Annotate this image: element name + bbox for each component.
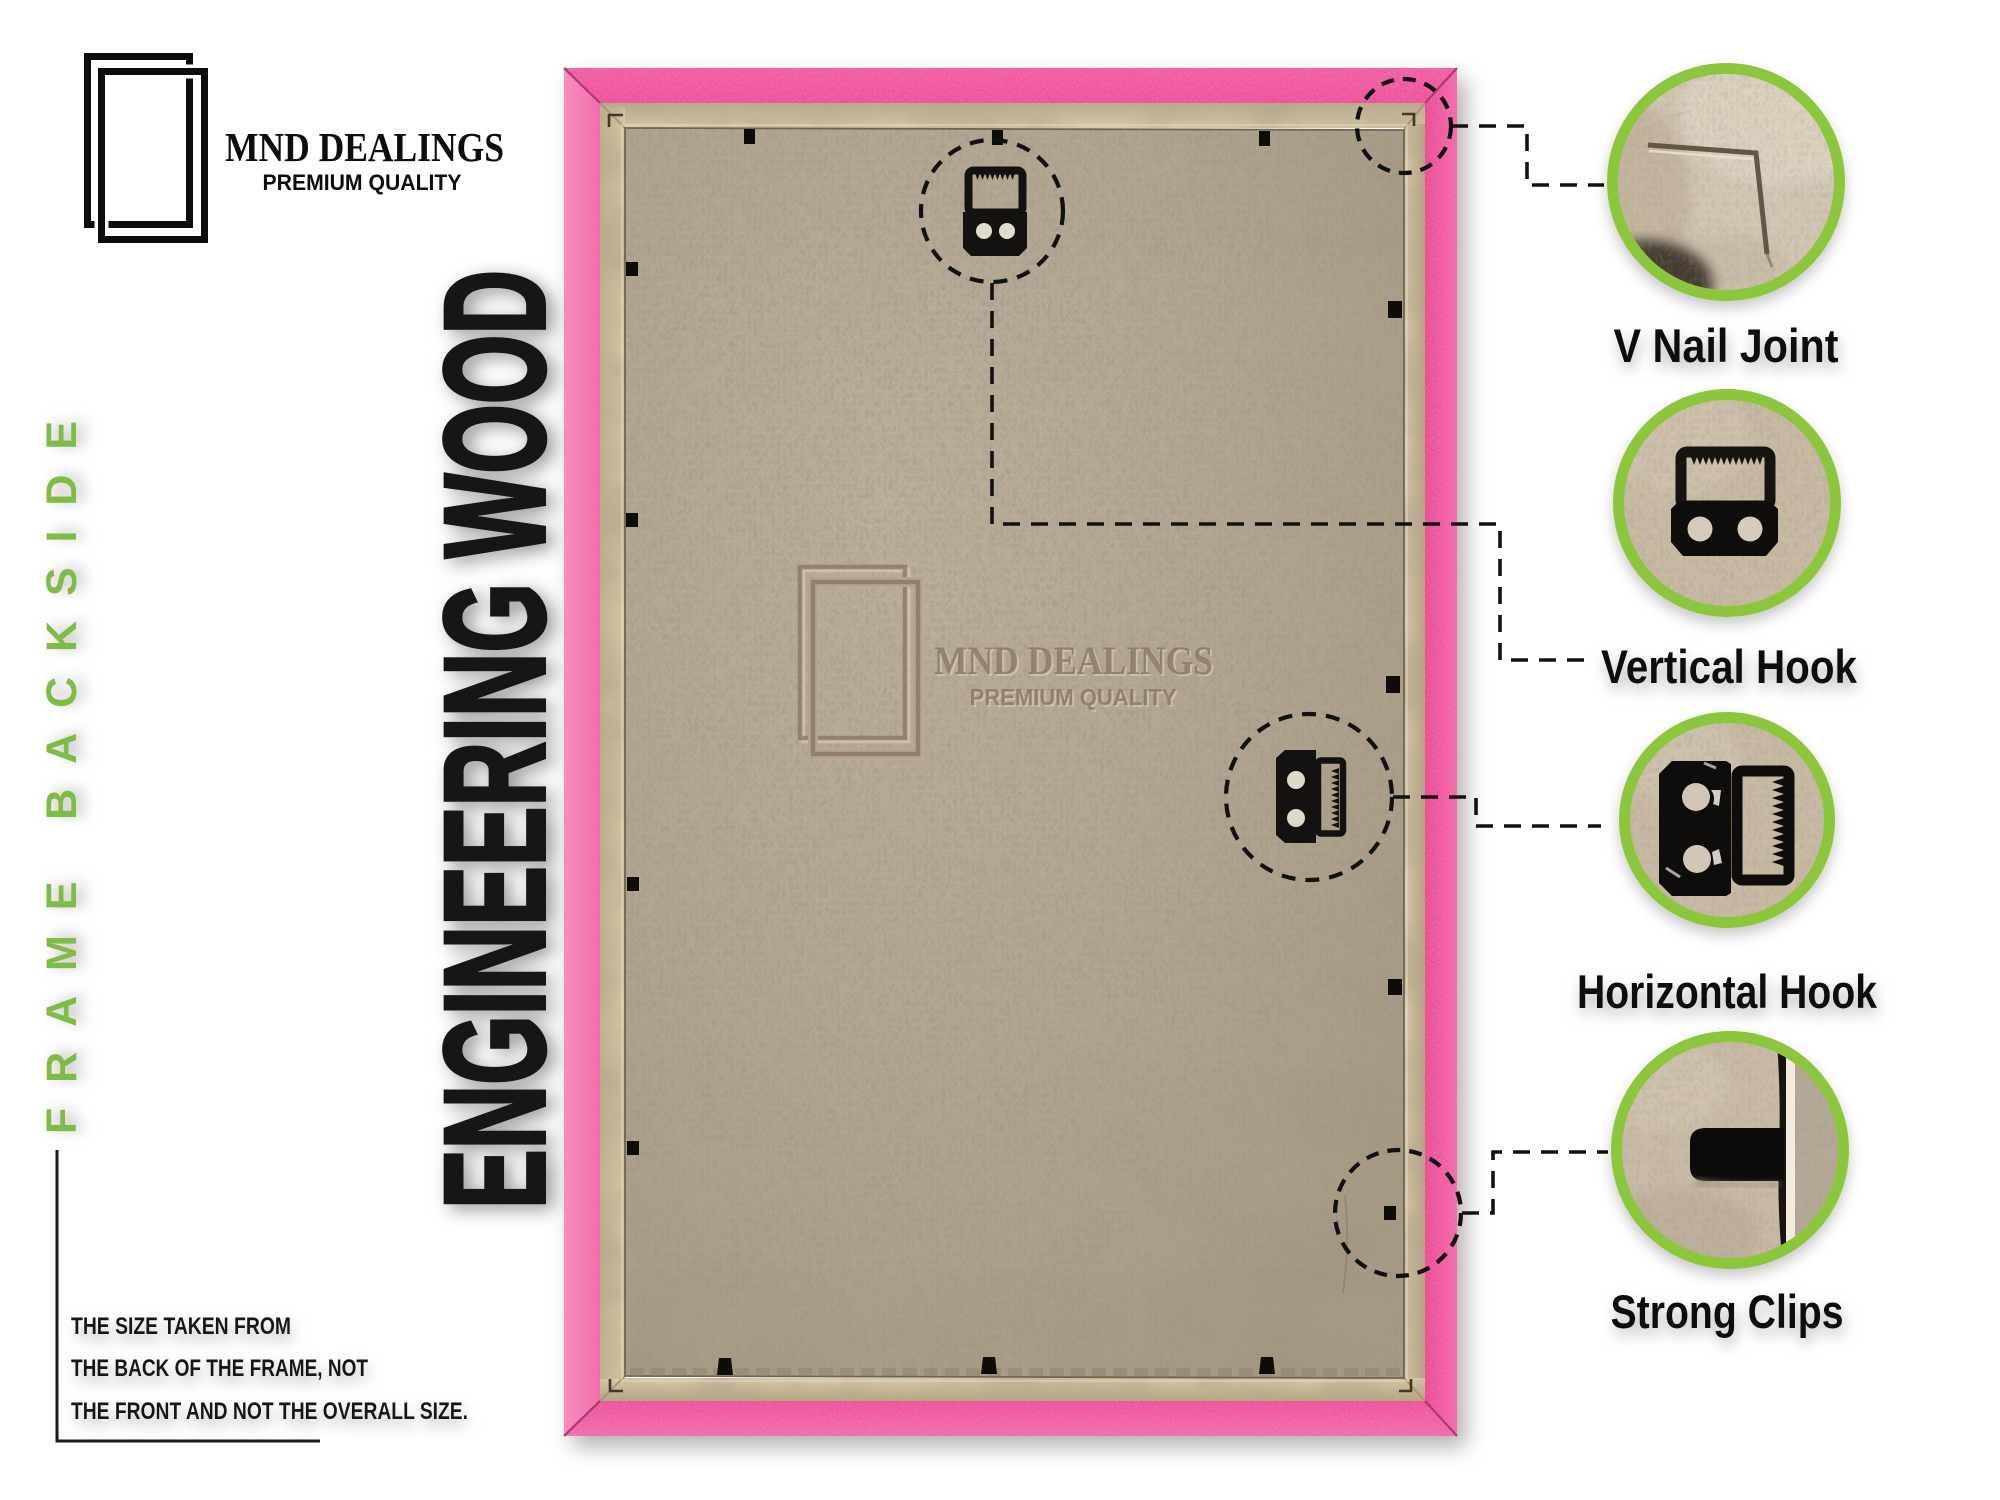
svg-text:V Nail Joint: V Nail Joint <box>1614 319 1839 372</box>
svg-text:Strong Clips: Strong Clips <box>1611 1285 1844 1338</box>
svg-text:THE BACK OF THE FRAME, NOT: THE BACK OF THE FRAME, NOT <box>71 1355 368 1382</box>
svg-text:Vertical Hook: Vertical Hook <box>1601 640 1858 693</box>
svg-text:PREMIUM QUALITY: PREMIUM QUALITY <box>970 684 1177 710</box>
svg-text:Horizontal Hook: Horizontal Hook <box>1577 965 1878 1018</box>
svg-text:THE SIZE TAKEN FROM: THE SIZE TAKEN FROM <box>71 1313 291 1340</box>
svg-text:MND DEALINGS: MND DEALINGS <box>225 124 504 170</box>
svg-text:PREMIUM QUALITY: PREMIUM QUALITY <box>263 170 462 195</box>
svg-text:MND DEALINGS: MND DEALINGS <box>934 638 1213 683</box>
svg-text:ENGINEERING WOOD: ENGINEERING WOOD <box>416 270 575 1209</box>
svg-text:THE FRONT AND NOT THE OVERALL: THE FRONT AND NOT THE OVERALL SIZE. <box>71 1398 468 1425</box>
